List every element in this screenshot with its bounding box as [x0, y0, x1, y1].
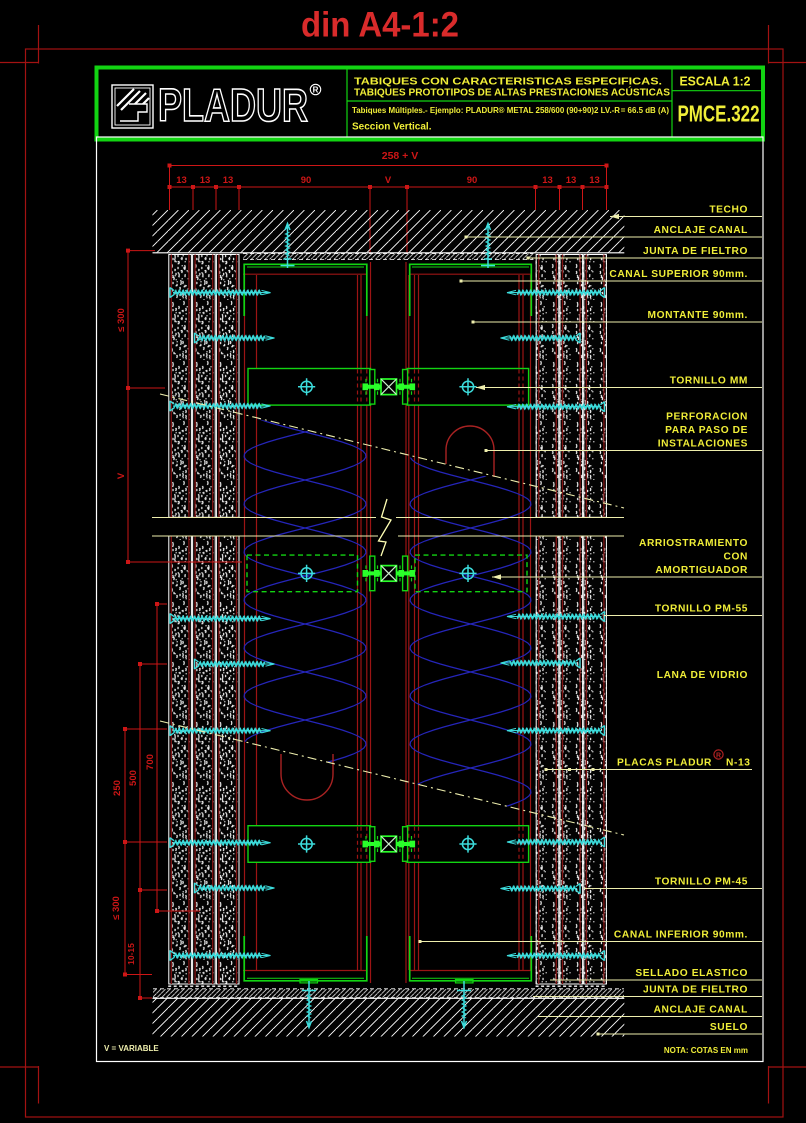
- svg-text:13: 13: [566, 175, 577, 186]
- svg-text:Tabiques Múltiples.- Ejemplo:: Tabiques Múltiples.- Ejemplo: PLADUR® ME…: [352, 105, 669, 115]
- svg-text:LANA DE VIDRIO: LANA DE VIDRIO: [657, 670, 748, 681]
- svg-text:din A4-1:2: din A4-1:2: [301, 6, 459, 45]
- svg-text:ANCLAJE CANAL: ANCLAJE CANAL: [654, 1005, 748, 1016]
- svg-text:TORNILLO MM: TORNILLO MM: [670, 376, 748, 387]
- svg-text:V = VARIABLE: V = VARIABLE: [104, 1044, 159, 1053]
- svg-text:13: 13: [200, 175, 211, 186]
- svg-text:CON: CON: [724, 552, 748, 563]
- svg-text:CANAL INFERIOR 90mm.: CANAL INFERIOR 90mm.: [614, 930, 748, 941]
- svg-text:≤ 300: ≤ 300: [111, 896, 122, 920]
- svg-text:90: 90: [301, 175, 312, 186]
- svg-text:258 + V: 258 + V: [382, 150, 419, 162]
- svg-text:MONTANTE 90mm.: MONTANTE 90mm.: [648, 310, 748, 321]
- svg-text:N-13: N-13: [726, 758, 750, 769]
- svg-text:PLADUR: PLADUR: [158, 79, 308, 131]
- svg-text:90: 90: [467, 175, 478, 186]
- svg-text:ARRIOSTRAMIENTO: ARRIOSTRAMIENTO: [639, 538, 748, 549]
- svg-text:JUNTA DE FIELTRO: JUNTA DE FIELTRO: [643, 985, 748, 996]
- svg-text:≤ 300: ≤ 300: [116, 308, 127, 332]
- svg-text:R: R: [716, 753, 721, 760]
- svg-text:13: 13: [223, 175, 234, 186]
- svg-text:250: 250: [112, 780, 123, 796]
- svg-text:PMCE.322: PMCE.322: [678, 101, 760, 127]
- svg-text:ANCLAJE CANAL: ANCLAJE CANAL: [654, 225, 748, 236]
- svg-text:TORNILLO PM-55: TORNILLO PM-55: [655, 604, 748, 615]
- svg-text:Seccion Vertical.: Seccion Vertical.: [352, 122, 432, 133]
- svg-text:500: 500: [128, 770, 139, 786]
- svg-text:AMORTIGUADOR: AMORTIGUADOR: [655, 565, 748, 576]
- svg-text:NOTA: COTAS EN mm: NOTA: COTAS EN mm: [664, 1046, 748, 1055]
- svg-text:10-15: 10-15: [126, 943, 136, 965]
- svg-text:CANAL SUPERIOR 90mm.: CANAL SUPERIOR 90mm.: [609, 269, 748, 280]
- svg-text:TECHO: TECHO: [709, 205, 748, 216]
- svg-text:13: 13: [589, 175, 600, 186]
- svg-text:TORNILLO PM-45: TORNILLO PM-45: [655, 877, 748, 888]
- svg-text:13: 13: [542, 175, 553, 186]
- svg-text:700: 700: [145, 754, 156, 770]
- svg-text:PERFORACION: PERFORACION: [666, 412, 748, 423]
- svg-text:ESCALA 1:2: ESCALA 1:2: [680, 74, 751, 89]
- svg-text:SUELO: SUELO: [710, 1022, 748, 1033]
- svg-text:SELLADO ELASTICO: SELLADO ELASTICO: [635, 968, 748, 979]
- svg-text:TABIQUES PROTOTIPOS DE ALTAS P: TABIQUES PROTOTIPOS DE ALTAS PRESTACIONE…: [354, 86, 670, 99]
- svg-text:PARA PASO DE: PARA PASO DE: [665, 425, 748, 436]
- svg-text:INSTALACIONES: INSTALACIONES: [658, 439, 748, 450]
- svg-text:JUNTA DE FIELTRO: JUNTA DE FIELTRO: [643, 246, 748, 257]
- svg-text:V: V: [116, 472, 127, 479]
- svg-text:V: V: [385, 175, 392, 186]
- svg-text:PLACAS PLADUR: PLACAS PLADUR: [617, 758, 712, 769]
- svg-text:R: R: [313, 86, 319, 95]
- svg-text:13: 13: [176, 175, 187, 186]
